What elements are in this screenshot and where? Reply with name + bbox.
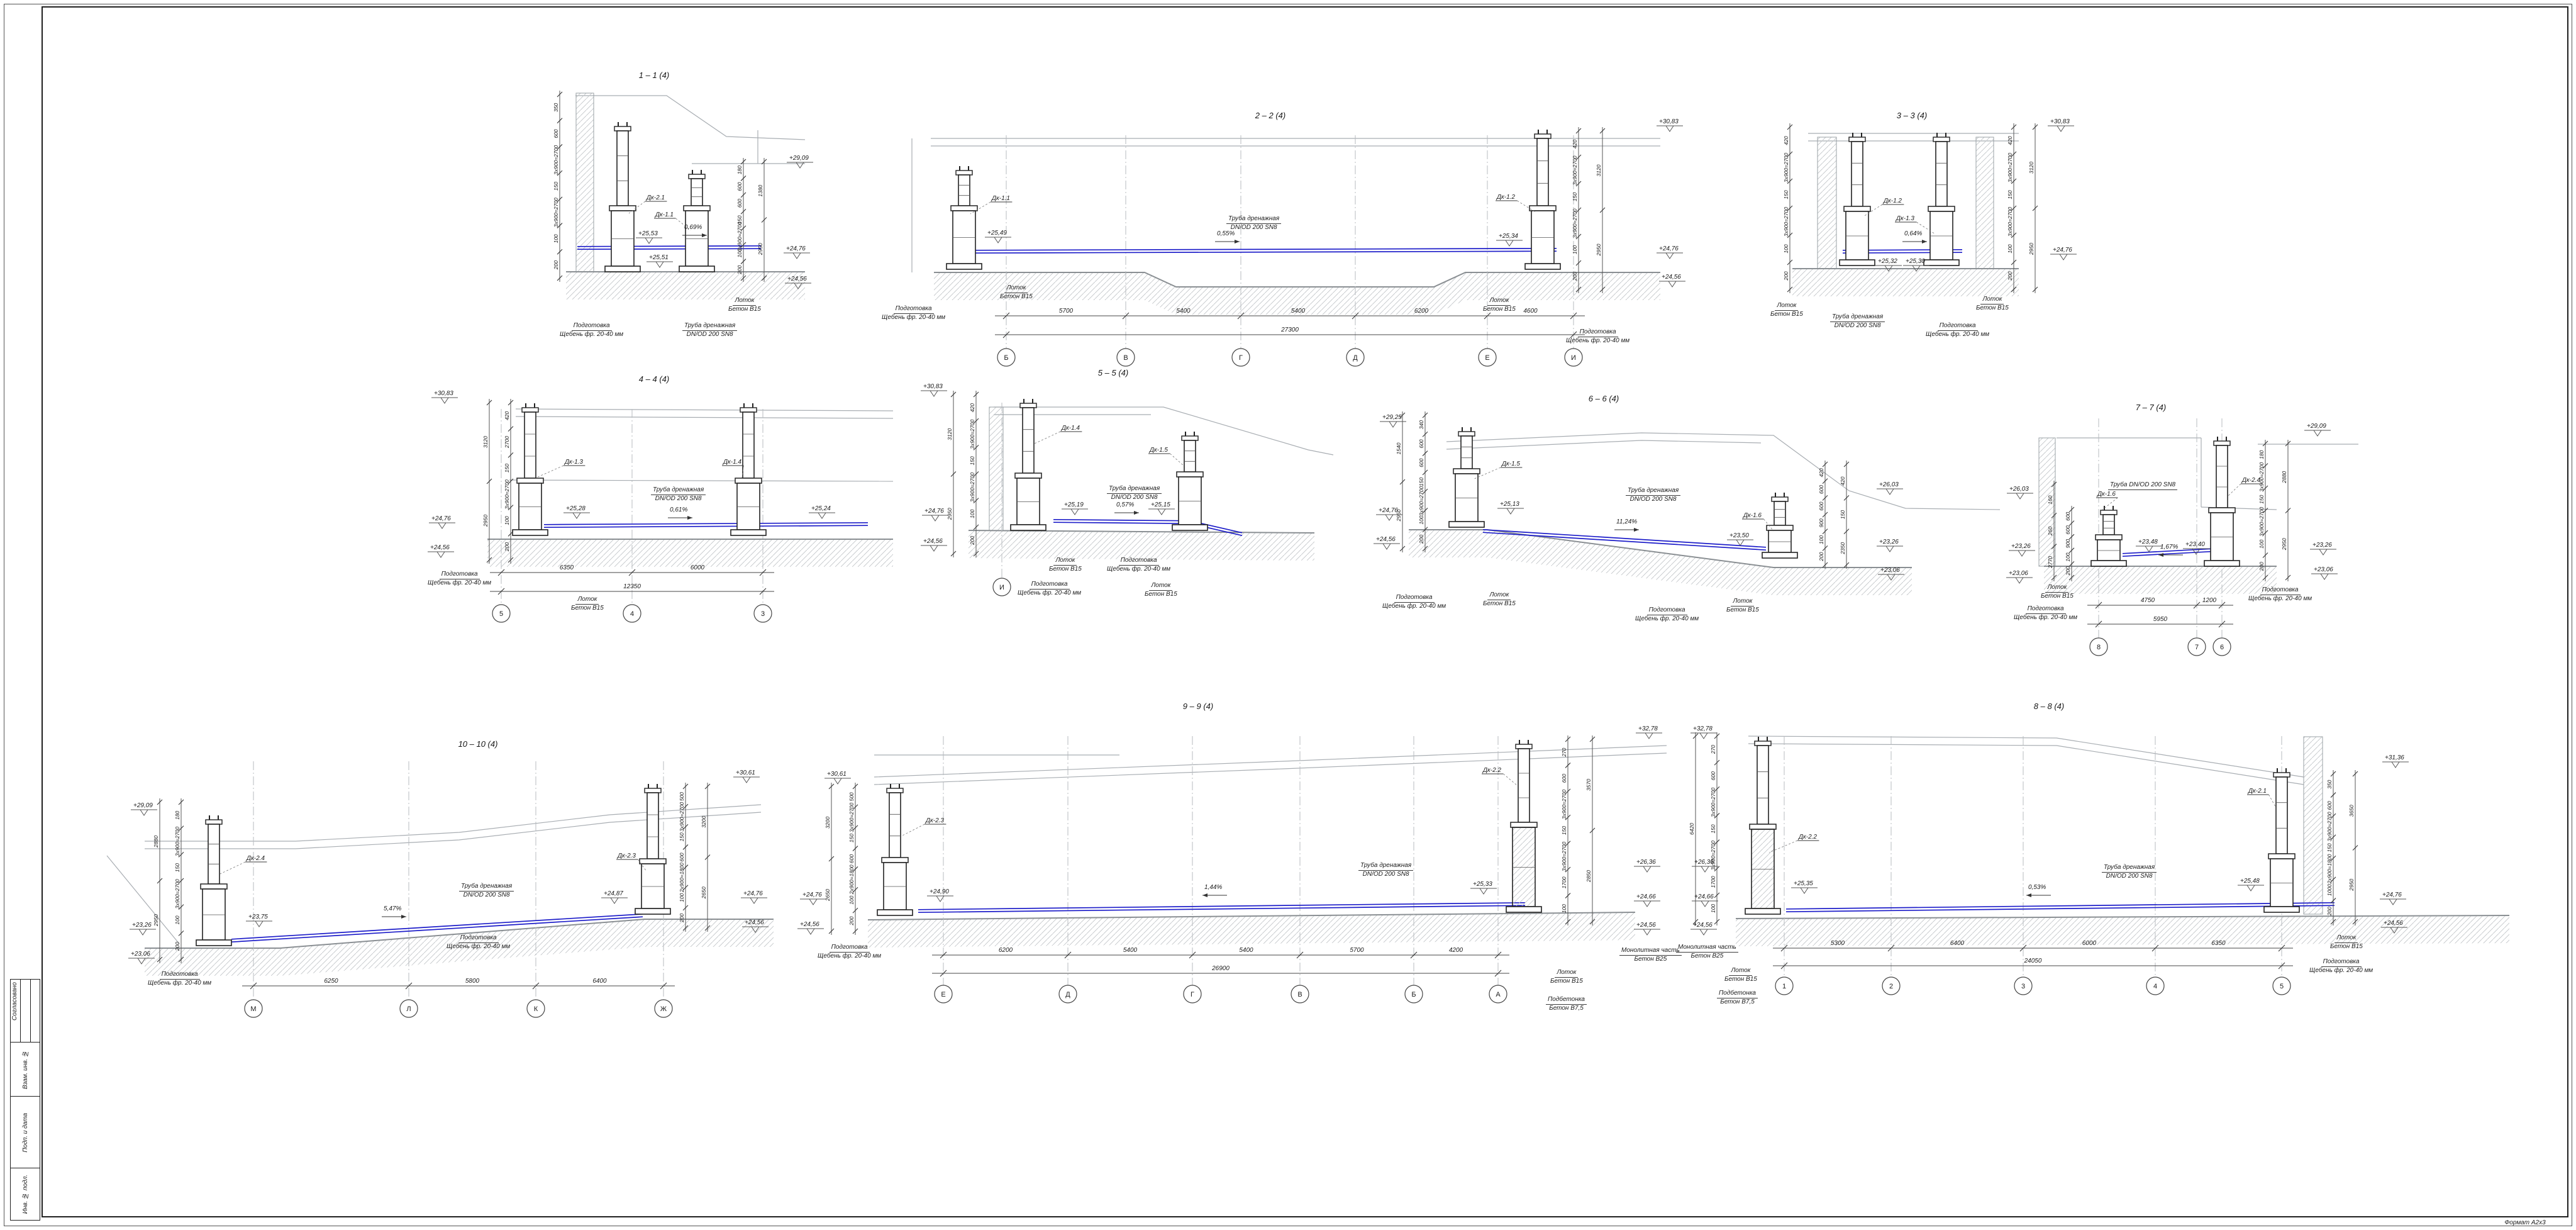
- slope-label: 1,67%: [2160, 544, 2178, 551]
- dim-label: 3x900=2700: [736, 221, 743, 251]
- leader-note: Монолитная частьБетон В25: [1676, 944, 1738, 960]
- column-lower: [611, 211, 634, 266]
- elevation-label: +24,76: [786, 245, 806, 252]
- column-lower: [203, 889, 225, 940]
- column-shaft: [1023, 408, 1034, 473]
- elevation-arrow-icon: [2319, 549, 2327, 555]
- elevation-label: +29,09: [789, 155, 809, 162]
- drain-pipe-bottom: [1053, 522, 1190, 523]
- column-label-leader: [1035, 432, 1060, 444]
- note-line: Бетон В15: [1000, 293, 1033, 301]
- dim-label: 100: [736, 249, 743, 257]
- dim-label: 900: [2065, 539, 2071, 548]
- dim-label: 600: [553, 129, 559, 138]
- dim-label: 600: [2065, 525, 2071, 534]
- column-shaft: [958, 175, 970, 206]
- elevation-arrow-icon: [1801, 888, 1808, 893]
- column-lower: [1513, 827, 1535, 907]
- elevation-arrow-icon: [2247, 885, 2255, 891]
- elevation-label: +25,48: [2240, 878, 2260, 885]
- dim-label: 3x900=2700: [2007, 153, 2013, 182]
- column-collar: [684, 206, 710, 211]
- column-label-leader: [220, 862, 245, 874]
- span-dim-label: 5400: [1239, 947, 1253, 954]
- column-label: Дк-1.2: [1496, 194, 1515, 201]
- dim-label: 3x900=2700: [553, 198, 559, 227]
- leader-note: Труба дренажнаяDN/OD 200 SN8: [1830, 313, 1885, 330]
- column-label: Дк-1.3: [1896, 215, 1914, 222]
- column-label: Дк-2.2: [1798, 834, 1817, 841]
- slope-label: 1,44%: [1204, 884, 1222, 891]
- dim-label: 150: [2007, 190, 2013, 199]
- grid-bubble-label: И: [999, 584, 1004, 591]
- structure-line: [874, 753, 1667, 785]
- leader-note: ПодготовкаЩебень фр. 20-40 мм: [1107, 557, 1170, 573]
- note-line: Подготовка: [2260, 586, 2301, 595]
- note-line: Подготовка: [1578, 328, 1618, 337]
- dim-label: 150: [174, 863, 180, 872]
- note-line: Бетон В15: [728, 306, 761, 313]
- elevation-label: +30,83: [923, 383, 943, 390]
- dim-label: 420: [504, 411, 510, 420]
- elevation-label: +24,56: [430, 544, 450, 551]
- grid-bubble-label: Б: [1411, 991, 1416, 998]
- elevation-arrow-icon: [438, 523, 446, 528]
- dim-label: 3120: [482, 436, 489, 448]
- note-line: Бетон В7,5: [1546, 1005, 1587, 1012]
- column-collar: [735, 478, 762, 483]
- dim-label: 3120: [2028, 162, 2035, 174]
- elevation-arrow-icon: [255, 921, 263, 927]
- stamp-row-label: Инв. № подл.: [22, 1175, 29, 1214]
- note-line: Лоток: [733, 297, 756, 306]
- dim-label: 600: [1818, 501, 1824, 510]
- dim-label: 100: [504, 516, 510, 525]
- ground-hatch: [487, 539, 893, 567]
- grid-bubble-label: 7: [2195, 644, 2199, 651]
- dim-label: 260: [2047, 527, 2053, 536]
- dim-label: 200: [2065, 566, 2071, 576]
- column-shaft: [617, 131, 628, 206]
- dim-label: 2650: [701, 886, 707, 899]
- column-cap: [1772, 497, 1788, 501]
- dim-label: 420: [1818, 468, 1824, 477]
- elevation-label: +25,34: [1499, 233, 1518, 240]
- column-lower: [1455, 474, 1478, 522]
- drain-pipe-bottom: [544, 525, 868, 527]
- leader-note: ЛотокБетон В15: [1726, 598, 1759, 614]
- column-label: Дк-1.5: [1149, 447, 1168, 454]
- elevation-label: +30,61: [827, 771, 847, 778]
- note-line: Бетон В15: [2330, 943, 2363, 951]
- dim-label: 200: [1818, 552, 1824, 561]
- note-line: Щебень фр. 20-40 мм: [560, 331, 623, 338]
- section-7-7: 7 – 7 (4)Дк-1.6Дк-2.46006009001002001602…: [2006, 384, 2566, 736]
- dim-label: 100: [174, 915, 180, 924]
- dim-label: 200: [2326, 907, 2333, 916]
- column-label: Дк-2.2: [1482, 767, 1501, 774]
- note-line: Лоток: [2045, 584, 2068, 593]
- leader-note: ЛотокБетон В15: [1483, 591, 1516, 608]
- stamp-row-vzam: Взам. инв. №: [10, 1042, 40, 1097]
- elevation-arrow-icon: [743, 777, 750, 783]
- elevation-label: +25,51: [649, 254, 669, 261]
- note-line: Бетон В15: [1550, 978, 1583, 985]
- column-lower: [1768, 530, 1791, 552]
- elevation-label: +32,78: [1693, 725, 1713, 732]
- leader-note: ЛотокБетон В15: [571, 596, 604, 612]
- dim-label: 200: [679, 914, 685, 923]
- leader-note: ПодготовкаЩебень фр. 20-40 мм: [882, 305, 945, 321]
- dim-label: 600: [736, 182, 743, 191]
- column-footing: [731, 530, 766, 535]
- column-shaft: [691, 179, 702, 206]
- elevation-arrow-icon: [2145, 546, 2153, 552]
- column-lower: [737, 483, 760, 530]
- span-dim-label: 5400: [1291, 308, 1306, 315]
- leader-note: Труба дренажнаяDN/OD 200 SN8: [1626, 487, 1680, 503]
- dim-label: 100: [969, 509, 975, 518]
- column-footing: [196, 940, 231, 946]
- dim-label: 200: [1418, 534, 1424, 544]
- note-line: Щебень фр. 20-40 мм: [1018, 590, 1081, 597]
- note-line: DN/OD 200 SN8: [1107, 494, 1162, 501]
- column-label: Дк-1.1: [655, 211, 674, 218]
- span-dim-label: 6350: [2211, 940, 2226, 947]
- leader-note: Труба дренажнаяDN/OD 200 SN8: [2102, 864, 2157, 880]
- elevation-label: +23,06: [131, 951, 150, 958]
- note-line: Труба дренажная: [1626, 487, 1680, 496]
- note-line: Щебень фр. 20-40 мм: [1926, 331, 1989, 338]
- dim-label: 3x900=2700: [848, 803, 855, 832]
- note-line: Подготовка: [572, 322, 612, 331]
- elevation-arrow-icon: [796, 162, 804, 168]
- column-footing: [635, 909, 670, 914]
- dim-label: 100: [2065, 552, 2071, 561]
- leader-note: ЛотокБетон В15: [728, 297, 761, 313]
- elevation-arrow-icon: [807, 929, 814, 934]
- elevation-arrow-icon: [1389, 422, 1397, 427]
- grid-bubble-label: И: [1571, 354, 1576, 362]
- dim-label: 150: [1710, 824, 1716, 833]
- structure-line: [509, 480, 893, 481]
- dim-label: 200: [848, 916, 855, 925]
- column-collar: [2209, 508, 2235, 513]
- column-footing: [1840, 260, 1875, 266]
- elevation-label: +24,76: [802, 892, 822, 898]
- note-line: Труба дренажная: [1358, 862, 1413, 871]
- dim-label: 200: [2258, 562, 2265, 571]
- note-line: Бетон В15: [1049, 566, 1082, 573]
- dim-label: 2x900=1800: [2326, 854, 2333, 884]
- section-canvas: Дк-1.4Дк-1.54203x900=27001503x900=270010…: [899, 368, 1340, 708]
- column-footing: [947, 264, 982, 269]
- format-label: Формат А2х3: [2484, 1219, 2566, 1226]
- column-label: Дк-1.3: [564, 459, 583, 466]
- dim-label: 3200: [701, 816, 707, 828]
- dim-label: 150: [1561, 826, 1567, 835]
- note-line: Подготовка: [458, 934, 499, 943]
- elevation-label: +23,06: [2314, 566, 2333, 573]
- note-line: Труба дренажная: [651, 486, 706, 495]
- dim-label: 100: [1783, 244, 1789, 253]
- dim-label: 200: [1572, 272, 1578, 281]
- wall-hatch: [1976, 137, 1994, 269]
- section-canvas: Дк-2.3Дк-2.25003x900=27001506002x900=180…: [792, 702, 1673, 1041]
- section-canvas: Дк-1.5Дк-1.63406006001503x900=2700100200…: [1371, 384, 2006, 711]
- leader-note: ЛотокБетон В15: [1049, 557, 1082, 573]
- section-canvas: Дк-1.6Дк-2.46006009001002001602602770180…: [2006, 384, 2566, 736]
- elevation-label: +24,76: [2053, 247, 2072, 254]
- section-1-1: 1 – 1 (4)Дк-2.1Дк-1.13506003x900=2700150…: [541, 70, 902, 366]
- elevation-arrow-icon: [1506, 240, 1513, 246]
- elevation-arrow-icon: [936, 896, 944, 902]
- dim-label: 3x900=2700: [1783, 153, 1789, 182]
- dim-label: 600: [679, 853, 685, 861]
- dim-label: 2x900=1800: [848, 864, 855, 895]
- note-line: Щебень фр. 20-40 мм: [882, 314, 945, 321]
- column-collar: [1750, 824, 1776, 829]
- elevation-label: +24,56: [1636, 922, 1656, 929]
- dim-label: 3x900=2700: [2326, 812, 2333, 841]
- column-lower: [2270, 859, 2293, 907]
- column-shaft: [1518, 749, 1529, 822]
- column-footing: [2091, 561, 2126, 566]
- column-lower: [1846, 211, 1868, 260]
- elevation-label: +24,66: [1636, 893, 1656, 900]
- note-line: Монолитная часть: [1676, 944, 1738, 953]
- dim-label: 150: [2326, 843, 2333, 852]
- dim-label: 2770: [2047, 556, 2053, 569]
- dim-label: 3x900=2700: [969, 419, 975, 449]
- dim-label: 150: [1783, 190, 1789, 199]
- dim-label: 270: [1710, 745, 1716, 754]
- elevation-label: +24,56: [745, 919, 764, 926]
- column-label: Дк-1.5: [1501, 461, 1520, 467]
- structure-line: [107, 856, 179, 944]
- side-stamp: Согласовано Взам. инв. № Подп. и дата Ин…: [10, 979, 40, 1219]
- column-lower: [884, 863, 906, 910]
- leader-note: ЛотокБетон В15: [1145, 582, 1177, 598]
- slope-label: 11,24%: [1616, 518, 1637, 525]
- dim-label: 2950: [482, 515, 489, 527]
- span-dim-label: 6350: [560, 564, 574, 571]
- elevation-arrow-icon: [2321, 574, 2328, 579]
- dim-label: 180: [2258, 450, 2265, 459]
- column-collar: [517, 478, 543, 483]
- note-line: DN/OD 200 SN8: [1226, 224, 1281, 232]
- elevation-label: +26,36: [1694, 859, 1714, 866]
- dim-label: 200: [504, 542, 510, 552]
- span-dim-label: 6200: [1414, 308, 1429, 315]
- column-collar: [1844, 206, 1870, 211]
- elevation-label: +23,75: [248, 914, 268, 920]
- note-line: Лоток: [1555, 969, 1578, 978]
- elevation-label: +23,06: [1880, 567, 1900, 574]
- dim-label: 150: [553, 182, 559, 191]
- grid-bubble-label: 3: [761, 610, 765, 618]
- column-label: Дк-2.1: [2248, 788, 2267, 795]
- dim-label: 3570: [1585, 779, 1592, 791]
- leader-note: ЛотокБетон В15: [1000, 284, 1033, 301]
- elevation-arrow-icon: [809, 899, 817, 905]
- note-line: DN/OD 200 SN8: [682, 331, 737, 338]
- elevation-label: +24,56: [1376, 536, 1396, 543]
- elevation-arrow-icon: [1507, 508, 1514, 514]
- note-line: DN/OD 200 SN8: [2102, 873, 2157, 880]
- elevation-label: +24,87: [604, 890, 623, 897]
- leader-note: ПодбетонкаБетон В7,5: [1717, 990, 1758, 1006]
- elevation-arrow-icon: [1886, 489, 1894, 495]
- note-line: DN/OD 200 SN8: [1626, 496, 1680, 503]
- note-line: Подготовка: [1647, 607, 1687, 615]
- dim-label: 200: [174, 942, 180, 951]
- note-line: Лоток: [1487, 297, 1511, 306]
- elevation-label: +30,83: [1659, 118, 1679, 125]
- elevation-arrow-icon: [645, 238, 653, 243]
- note-line: Щебень фр. 20-40 мм: [447, 943, 510, 951]
- dim-label: 100: [1572, 245, 1578, 254]
- dim-label: 200: [736, 265, 743, 274]
- note-line: Бетон В15: [1976, 305, 2009, 312]
- leader-note: ПодготовкаЩебень фр. 20-40 мм: [428, 571, 491, 587]
- elevation-arrow-icon: [437, 552, 445, 557]
- span-dim-label: 6000: [2082, 940, 2097, 947]
- note-line: Подготовка: [440, 571, 480, 579]
- dim-label: 2950: [2028, 243, 2035, 255]
- note-line: Лоток: [1487, 591, 1511, 600]
- leader-note: ПодготовкаЩебень фр. 20-40 мм: [1635, 607, 1699, 623]
- elevation-arrow-icon: [1071, 509, 1079, 515]
- dim-label: 1000: [2326, 884, 2333, 896]
- elevation-label: +23,26: [2312, 542, 2332, 549]
- elevation-arrow-icon: [1736, 540, 1744, 545]
- column-label: Дк-1.6: [1743, 512, 1762, 519]
- span-dim-label: 5800: [465, 978, 480, 985]
- elevation-label: +24,90: [930, 888, 949, 895]
- leader-note: ЛотокБетон В15: [2330, 934, 2363, 951]
- note-line: DN/OD 200 SN8: [1358, 871, 1413, 878]
- dim-label: 150: [1840, 510, 1846, 519]
- span-dim-label: 6400: [1950, 940, 1965, 947]
- grid-bubble-label: В: [1297, 991, 1302, 998]
- elevation-label: +24,76: [1379, 507, 1398, 514]
- leader-note: Труба дренажнаяDN/OD 200 SN8: [1226, 215, 1281, 232]
- elevation-arrow-icon: [931, 515, 939, 521]
- column-collar: [609, 206, 636, 211]
- elevation-arrow-icon: [441, 398, 448, 403]
- grid-bubble-label: М: [250, 1005, 256, 1013]
- elevation-label: +26,03: [2009, 486, 2029, 493]
- stamp-row-inv: Инв. № подл.: [10, 1168, 40, 1221]
- note-line: Бетон В15: [1483, 600, 1516, 608]
- ground-hatch: [1409, 530, 1912, 595]
- elevation-label: +23,06: [2009, 570, 2028, 577]
- elevation-label: +25,24: [811, 505, 831, 512]
- dim-label: 420: [1840, 476, 1846, 485]
- note-line: Подготовка: [2026, 605, 2066, 614]
- dim-label: 420: [1783, 136, 1789, 145]
- span-dim-label: 5700: [1059, 308, 1074, 315]
- span-dim-label: 6200: [999, 947, 1013, 954]
- section-canvas: Дк-1.3Дк-1.442027001503x900=270010020031…: [428, 374, 906, 676]
- column-footing: [513, 530, 548, 535]
- structure-line: [516, 409, 893, 411]
- column-shaft: [2103, 515, 2114, 535]
- dim-label: 500: [679, 792, 685, 801]
- elevation-label: +24,76: [1659, 245, 1679, 252]
- slope-label: 0,57%: [1116, 501, 1134, 508]
- note-line: Бетон В15: [1145, 591, 1177, 598]
- elevation-arrow-icon: [1886, 546, 1894, 552]
- elevation-label: +30,83: [2050, 118, 2070, 125]
- column-label: Дк-1.2: [1883, 198, 1902, 204]
- grid-bubble-label: Б: [1004, 354, 1008, 362]
- note-line: Бетон В15: [2041, 593, 2074, 600]
- column-label: Дк-2.3: [925, 817, 944, 824]
- elevation-label: +26,03: [1879, 481, 1899, 488]
- column-collar: [201, 884, 227, 889]
- column-shaft: [1757, 746, 1768, 824]
- column-footing: [1745, 909, 1780, 914]
- elevation-label: +30,83: [434, 390, 453, 397]
- note-line: Подготовка: [1938, 322, 1978, 331]
- dim-label: 3x900=2700: [1710, 841, 1716, 870]
- elevation-arrow-icon: [2314, 430, 2321, 436]
- note-line: Щебень фр. 20-40 мм: [1566, 337, 1629, 345]
- slope-arrow-head: [1235, 240, 1240, 243]
- dim-label: 3x900=2700: [1418, 486, 1424, 516]
- note-line: Щебень фр. 20-40 мм: [428, 579, 491, 587]
- elevation-arrow-icon: [139, 929, 147, 935]
- dim-label: 3x900=2700: [1572, 208, 1578, 238]
- slope-label: 0,64%: [1904, 230, 1922, 237]
- column-cap: [956, 171, 972, 175]
- note-line: Лоток: [1149, 582, 1172, 591]
- column-collar: [2268, 854, 2295, 859]
- grid-bubble-label: Е: [941, 991, 945, 998]
- elevation-arrow-icon: [2018, 551, 2026, 556]
- stamp-approval-box: Согласовано: [10, 979, 40, 1043]
- slope-arrow-head: [401, 915, 406, 919]
- elevation-arrow-icon: [1158, 509, 1165, 515]
- dim-label: 200: [969, 536, 975, 545]
- elevation-arrow-icon: [1666, 253, 1674, 259]
- elevation-label: +31,36: [2385, 754, 2404, 761]
- dim-label: 270: [1561, 747, 1567, 757]
- grid-bubble-label: А: [1496, 991, 1501, 998]
- column-cap: [1182, 436, 1198, 440]
- elevation-label: +24,76: [431, 515, 451, 522]
- elevation-arrow-icon: [1668, 281, 1676, 287]
- leader-note: ЛотокБетон В15: [1724, 967, 1757, 983]
- dim-label: 420: [969, 403, 975, 412]
- column-shaft: [889, 793, 901, 858]
- drain-pipe-bottom: [577, 249, 761, 249]
- dim-label: 600: [2065, 512, 2071, 520]
- elevation-label: +24,66: [1694, 893, 1714, 900]
- column-shaft: [1851, 142, 1863, 206]
- slope-label: 5,47%: [384, 905, 401, 912]
- elevation-arrow-icon: [656, 262, 663, 267]
- dim-label: 3120: [947, 428, 953, 440]
- column-cap: [1458, 432, 1475, 436]
- column-lower: [519, 483, 541, 530]
- dim-label: 350: [553, 103, 559, 111]
- elevation-arrow-icon: [1385, 515, 1393, 520]
- stamp-divider: [30, 980, 31, 1043]
- dim-label: 3x900=2700: [174, 879, 180, 909]
